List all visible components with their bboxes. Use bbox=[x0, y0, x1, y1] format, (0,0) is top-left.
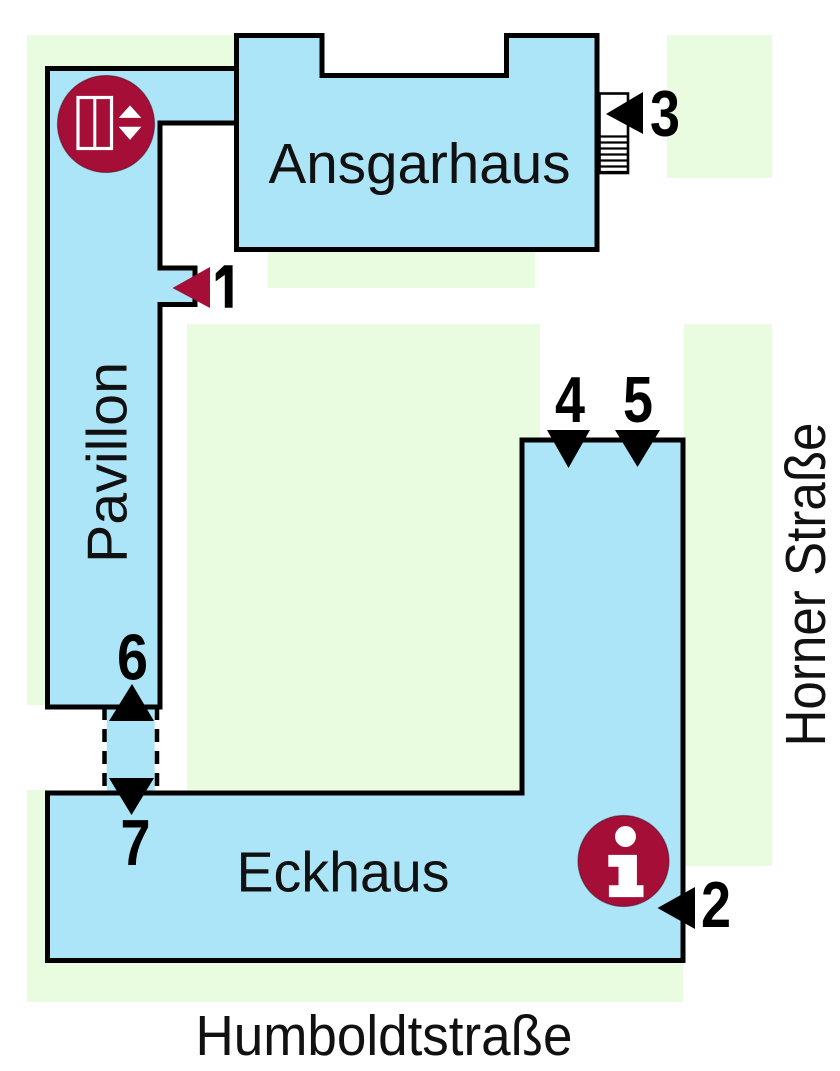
svg-text:Humboldtstraße: Humboldtstraße bbox=[196, 1004, 573, 1068]
svg-text:3: 3 bbox=[650, 77, 680, 150]
svg-text:4: 4 bbox=[555, 363, 585, 436]
svg-text:5: 5 bbox=[623, 363, 653, 436]
svg-text:7: 7 bbox=[121, 806, 151, 879]
svg-text:6: 6 bbox=[117, 621, 148, 694]
svg-text:Ansgarhaus: Ansgarhaus bbox=[269, 132, 571, 196]
svg-text:Eckhaus: Eckhaus bbox=[237, 841, 450, 905]
svg-text:Pavillon: Pavillon bbox=[76, 362, 140, 563]
svg-text:2: 2 bbox=[701, 868, 731, 941]
svg-text:Horner Straße: Horner Straße bbox=[774, 423, 838, 747]
